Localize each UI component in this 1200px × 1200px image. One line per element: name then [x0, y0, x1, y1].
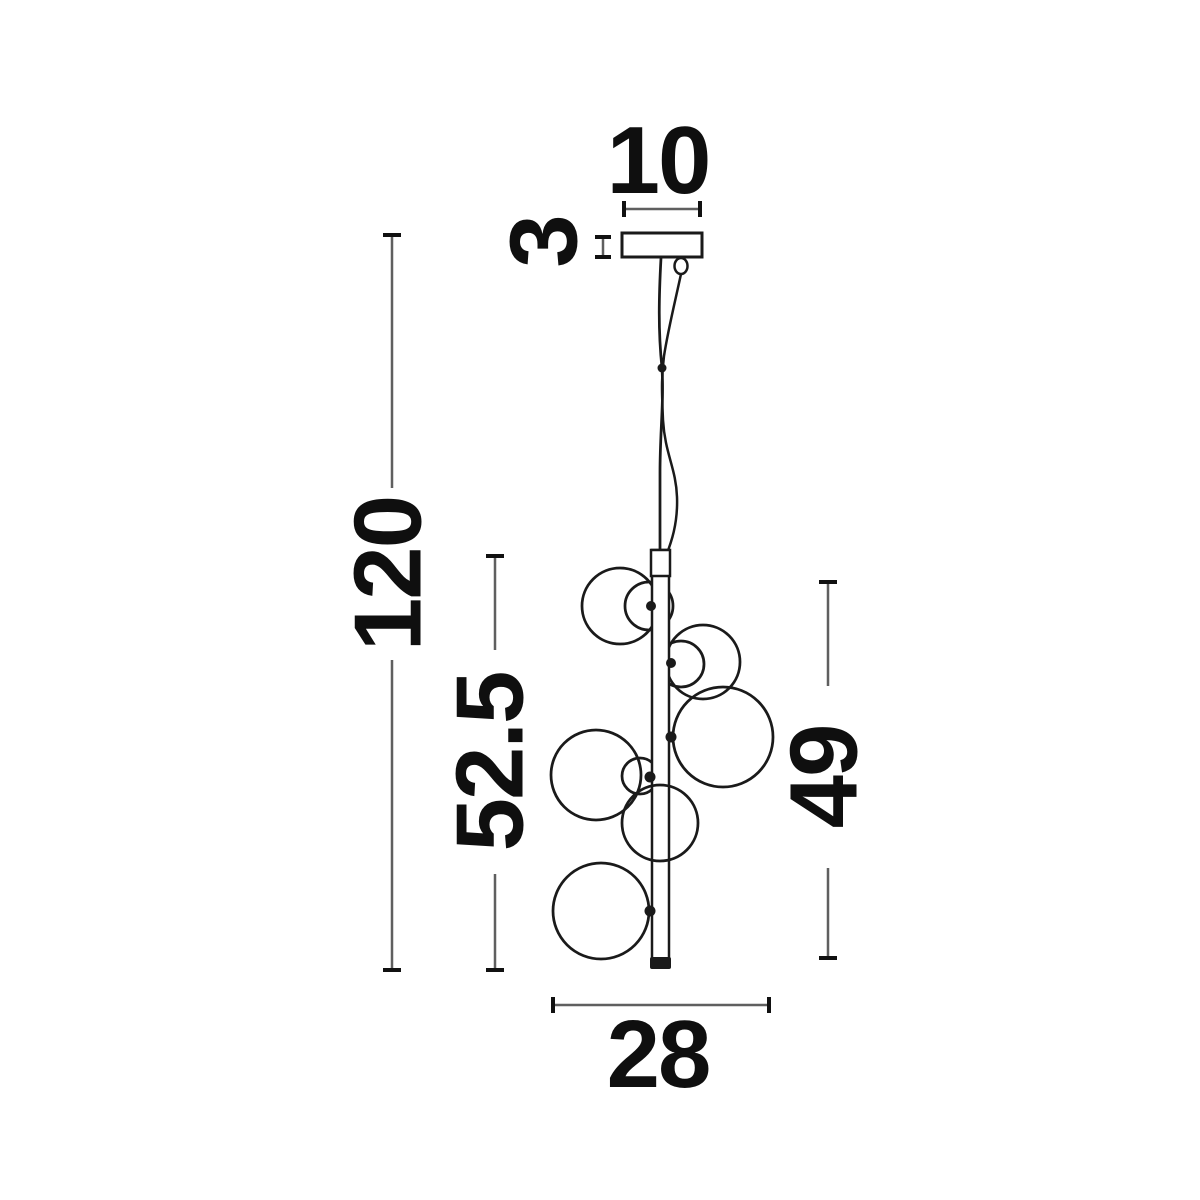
label-canopy-width: 10 — [607, 107, 710, 214]
rod-top-collar — [651, 550, 670, 576]
cord-loop — [675, 258, 688, 274]
glass-globe-4 — [551, 730, 641, 820]
globe-3-socket — [666, 732, 677, 743]
globe-1-socket — [646, 601, 656, 611]
ceiling-canopy — [622, 233, 702, 257]
power-cord — [662, 274, 681, 556]
globe-6-socket — [645, 906, 656, 917]
glass-globe-3 — [673, 687, 773, 787]
dimension-lines — [383, 201, 837, 1013]
label-fixture-width: 28 — [607, 1001, 710, 1108]
label-cluster-height: 49 — [771, 726, 878, 829]
globe-2-socket — [666, 658, 676, 668]
dimension-drawing-page: 10 3 120 52.5 49 28 — [0, 0, 1200, 1200]
glass-globe-6 — [553, 863, 649, 959]
pendant-lamp-diagram: 10 3 120 52.5 49 28 — [0, 0, 1200, 1200]
label-total-height: 120 — [335, 497, 442, 651]
label-canopy-height: 3 — [491, 216, 598, 267]
rod-end-cap — [650, 957, 671, 969]
label-stem-height: 52.5 — [437, 673, 544, 852]
stem-rod — [652, 550, 669, 960]
globe-4-socket — [645, 772, 656, 783]
lamp-drawing — [551, 233, 773, 969]
